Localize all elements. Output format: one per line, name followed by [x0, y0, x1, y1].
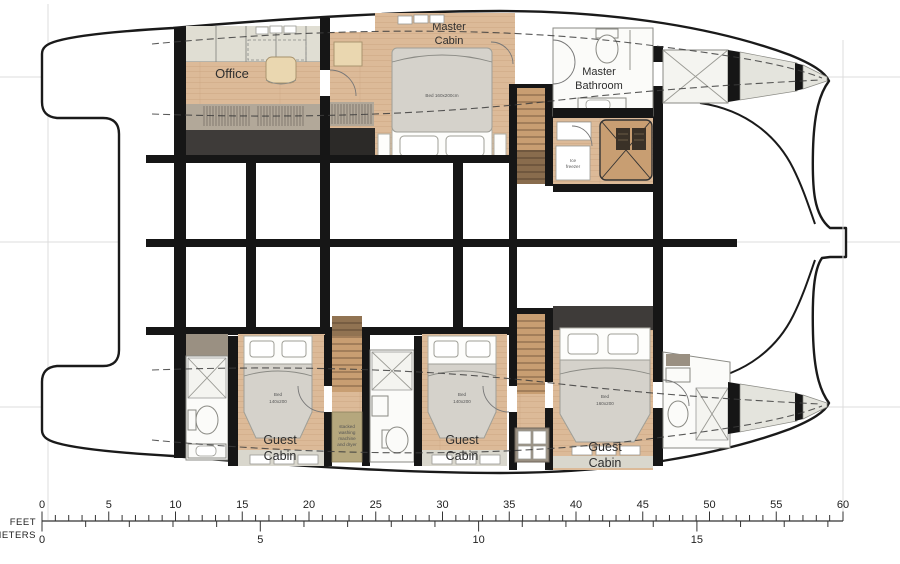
chest-of-drawers	[515, 428, 549, 462]
freezer-label-1: Ice	[570, 158, 577, 163]
svg-text:55: 55	[770, 499, 782, 511]
guest-bathroom-2	[370, 350, 414, 462]
svg-text:45: 45	[637, 499, 649, 511]
guest-cabin-2-label-2: Cabin	[446, 449, 479, 463]
svg-text:5: 5	[106, 499, 112, 511]
svg-text:40: 40	[570, 499, 582, 511]
laundry-label: and dryer	[337, 442, 357, 447]
svg-text:20: 20	[303, 499, 315, 511]
landing-seat	[334, 42, 362, 66]
pillow-icon	[282, 341, 306, 357]
sink-icon	[372, 396, 388, 416]
svg-text:25: 25	[370, 499, 382, 511]
bed-size: 140x200	[453, 399, 471, 404]
svg-text:35: 35	[503, 499, 515, 511]
sink-icon	[666, 368, 690, 382]
toilet-tank	[188, 410, 196, 430]
svg-text:15: 15	[691, 534, 703, 546]
pillow-icon	[466, 341, 490, 357]
master-bed-size: Bed 160x200cm	[425, 93, 458, 98]
ice-freezer	[556, 146, 590, 180]
svg-text:0: 0	[39, 534, 45, 546]
meters-axis-label: METERS	[0, 530, 36, 541]
guest-cabin-3-label-1: Guest	[588, 440, 622, 454]
guest-cabin-3-label-2: Cabin	[589, 456, 622, 470]
svg-text:15: 15	[236, 499, 248, 511]
svg-text:10: 10	[169, 499, 181, 511]
svg-text:5: 5	[257, 534, 263, 546]
drawer	[620, 446, 640, 455]
floorplan-svg: Office Bed 160x200cm Master Cabin	[0, 0, 900, 564]
pillow-icon	[608, 334, 638, 354]
master-bed: Bed 160x200cm	[378, 48, 506, 160]
bed-size: 140x200	[269, 399, 287, 404]
pillow-icon	[568, 334, 598, 354]
desk-chair-icon	[266, 57, 296, 83]
sink-icon	[196, 446, 216, 456]
guest-bed-2: Bed 140x200	[428, 336, 496, 438]
svg-text:50: 50	[703, 499, 715, 511]
guest-bathroom-3	[663, 352, 730, 448]
feet-axis-label: FEET	[10, 517, 36, 528]
engine-hatch-icon	[600, 120, 652, 180]
guest-cabin-2-label-1: Guest	[445, 433, 479, 447]
svg-text:0: 0	[39, 499, 45, 511]
bed-size: 160x200	[596, 401, 614, 406]
pillow-icon	[400, 136, 438, 156]
master-bathroom-label-2: Bathroom	[575, 80, 623, 92]
guest-cabin-1: Bed 140x200 Guest Cabin	[238, 334, 325, 466]
master-bathroom-label-1: Master	[582, 66, 616, 78]
bed-size: Bed	[458, 392, 467, 397]
svg-text:10: 10	[472, 534, 484, 546]
office-floor	[186, 62, 320, 104]
bed-size: Bed	[274, 392, 283, 397]
nightstand	[378, 134, 390, 158]
master-cabin: Bed 160x200cm Master Cabin	[375, 13, 515, 163]
nightstand	[494, 134, 506, 158]
toilet-icon	[596, 35, 618, 63]
laundry-label: stacked	[339, 424, 355, 429]
master-bathroom: Master Bathroom	[553, 28, 653, 116]
svg-text:30: 30	[436, 499, 448, 511]
bed-size: Bed	[601, 394, 610, 399]
toilet-icon	[668, 401, 688, 427]
guest-cabin-1-label-2: Cabin	[264, 449, 297, 463]
scale-ruler: FEET METERS 0510152025303540455055600510…	[0, 499, 849, 546]
toilet-icon	[196, 406, 218, 434]
freezer-label-2: freezer	[566, 164, 581, 169]
ruler-ticks: 051015202530354045505560051015	[39, 499, 849, 546]
stairs-forward	[509, 84, 553, 186]
freezer-room: Ice freezer	[553, 108, 653, 192]
pillow-icon	[434, 341, 458, 357]
drawer	[480, 455, 500, 464]
laundry-label: machine	[338, 436, 356, 441]
office-room: Office	[186, 26, 320, 157]
svg-text:60: 60	[837, 499, 849, 511]
pillow-icon	[446, 136, 484, 156]
laundry-label: washing	[339, 430, 356, 435]
guest-bed-1: Bed 140x200	[244, 336, 312, 438]
office-label: Office	[215, 66, 249, 81]
office-dark-band	[186, 130, 320, 157]
guest-bathroom-1	[186, 334, 228, 460]
drawer	[298, 455, 318, 464]
pillow-icon	[250, 341, 274, 357]
toilet-icon	[386, 427, 408, 453]
master-bed-mattress	[392, 48, 492, 132]
office-cabinets	[186, 26, 320, 62]
guest-cabin-1-label-1: Guest	[263, 433, 297, 447]
guest-cabin-2: Bed 140x200 Guest Cabin	[422, 334, 507, 466]
catamaran-floorplan: Office Bed 160x200cm Master Cabin	[0, 0, 900, 564]
master-cabin-label-2: Cabin	[435, 35, 464, 47]
